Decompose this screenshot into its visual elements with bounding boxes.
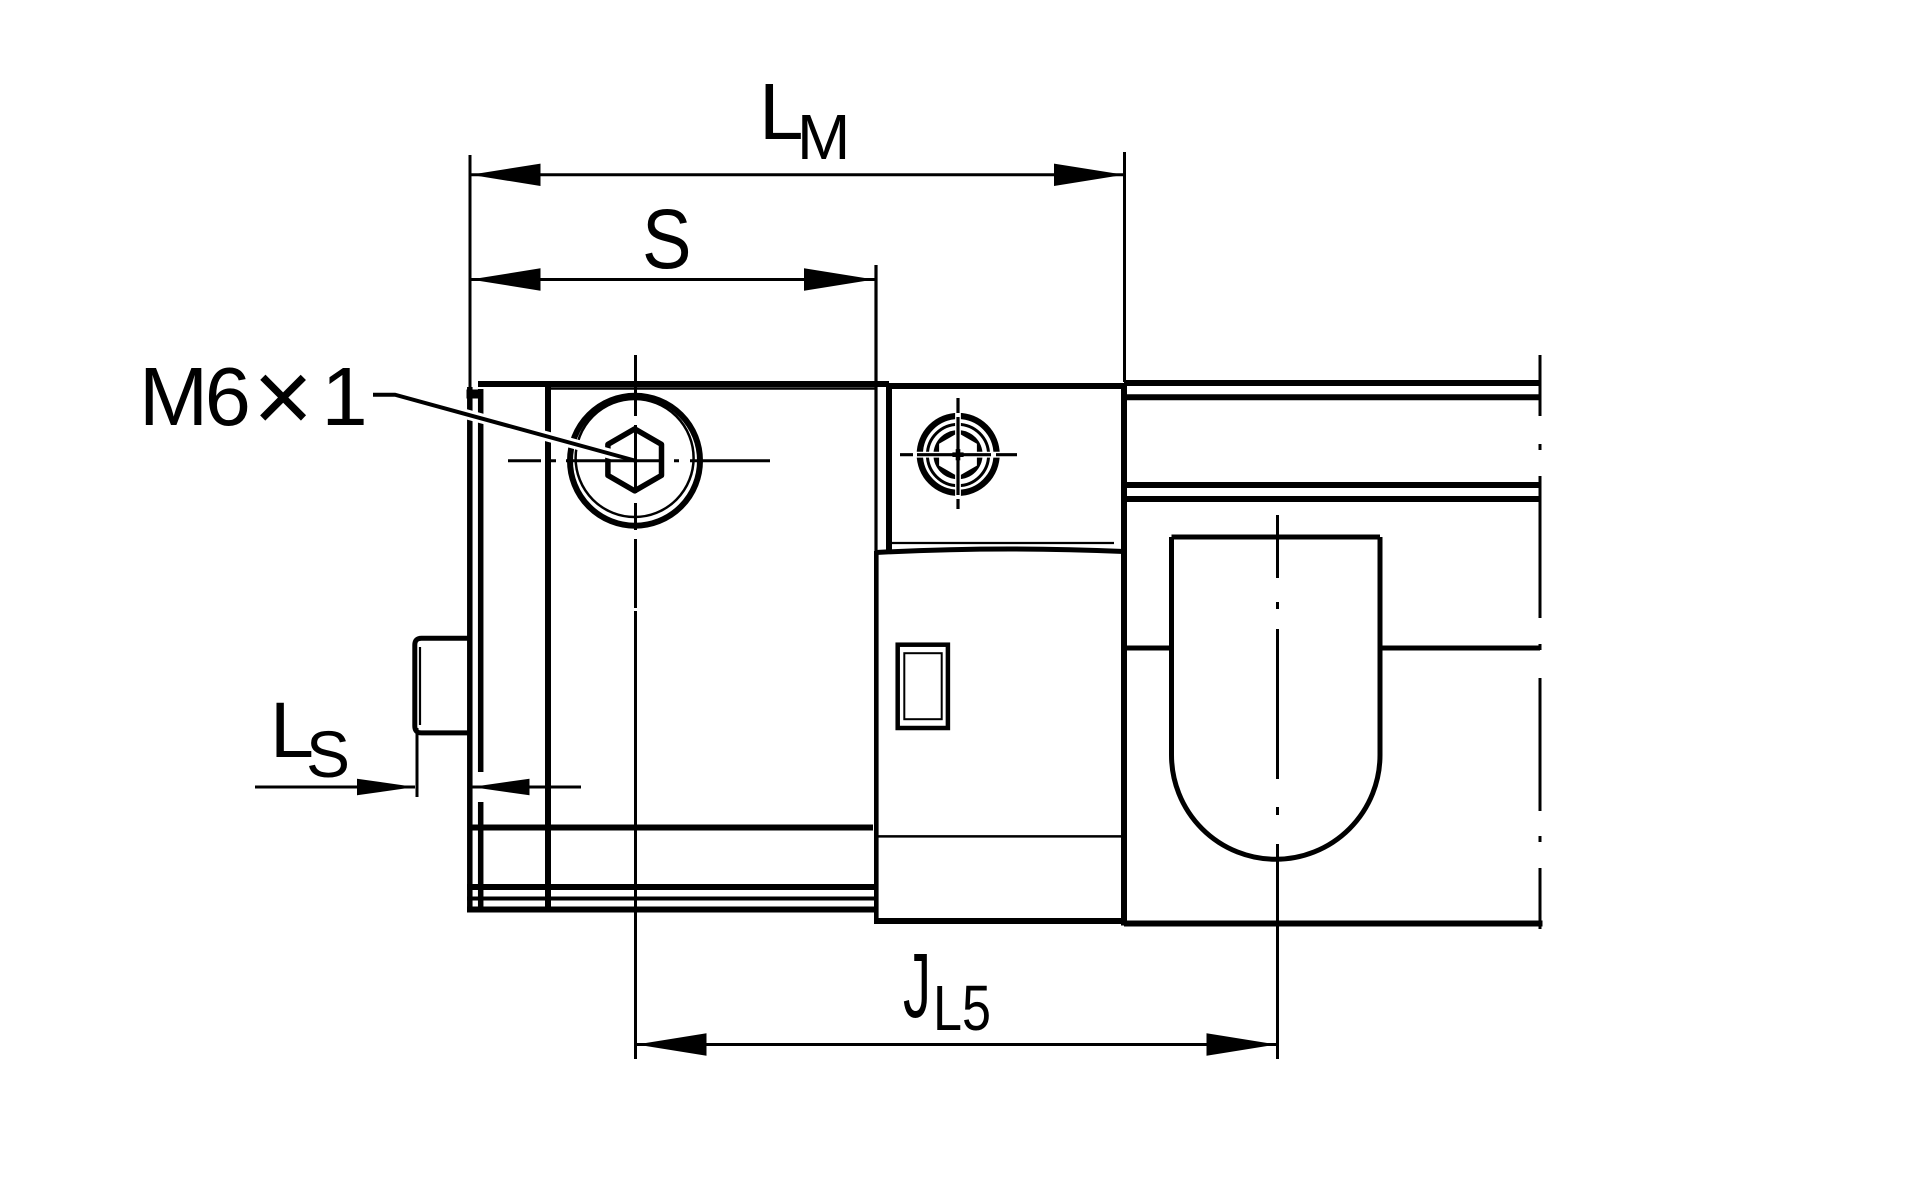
svg-text:1: 1 bbox=[322, 350, 368, 443]
svg-text:M6: M6 bbox=[139, 350, 248, 443]
svg-text:×: × bbox=[253, 339, 313, 454]
svg-text:J: J bbox=[903, 935, 931, 1037]
svg-text:L5: L5 bbox=[933, 972, 991, 1044]
svg-text:M: M bbox=[797, 101, 850, 173]
svg-text:S: S bbox=[642, 192, 692, 286]
svg-text:S: S bbox=[306, 717, 350, 791]
